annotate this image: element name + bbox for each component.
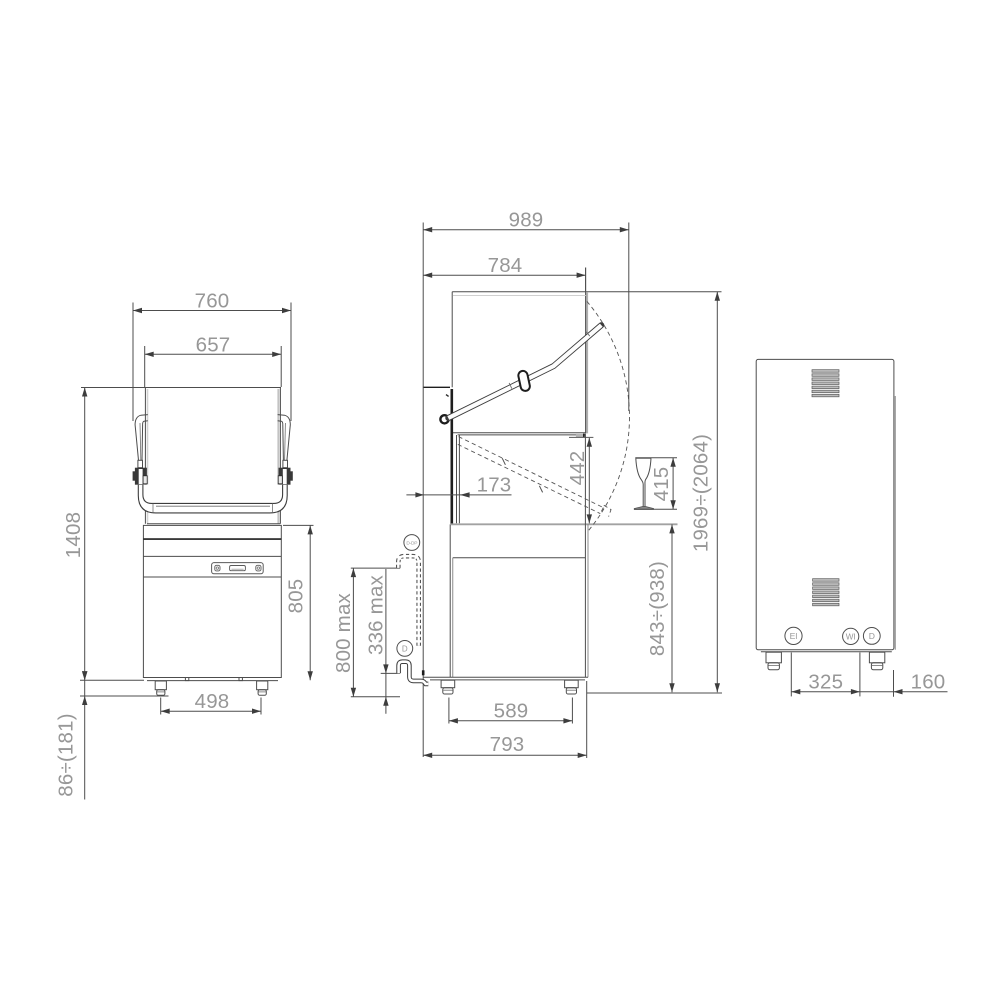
svg-text:793: 793 xyxy=(490,733,525,756)
svg-text:86÷(181): 86÷(181) xyxy=(55,713,78,797)
svg-text:657: 657 xyxy=(196,333,231,356)
svg-text:760: 760 xyxy=(195,290,230,313)
svg-text:336 max: 336 max xyxy=(365,574,388,655)
svg-text:498: 498 xyxy=(195,690,230,713)
svg-text:800 max: 800 max xyxy=(332,592,355,673)
svg-text:D: D xyxy=(402,644,408,653)
svg-text:989: 989 xyxy=(509,209,544,232)
svg-text:WI: WI xyxy=(846,632,856,641)
svg-text:1408: 1408 xyxy=(62,512,85,558)
svg-text:El: El xyxy=(790,631,798,641)
svg-text:805: 805 xyxy=(285,579,308,614)
svg-text:325: 325 xyxy=(808,670,843,693)
svg-text:843÷(938): 843÷(938) xyxy=(646,561,669,656)
svg-text:D: D xyxy=(869,631,875,641)
svg-text:160: 160 xyxy=(911,670,946,693)
svg-text:784: 784 xyxy=(488,254,523,277)
svg-text:442: 442 xyxy=(566,451,589,486)
svg-text:1969÷(2064): 1969÷(2064) xyxy=(690,434,713,552)
svg-text:D-DP: D-DP xyxy=(406,540,417,546)
svg-text:415: 415 xyxy=(650,467,673,502)
svg-text:173: 173 xyxy=(477,474,512,497)
svg-text:589: 589 xyxy=(494,700,529,723)
